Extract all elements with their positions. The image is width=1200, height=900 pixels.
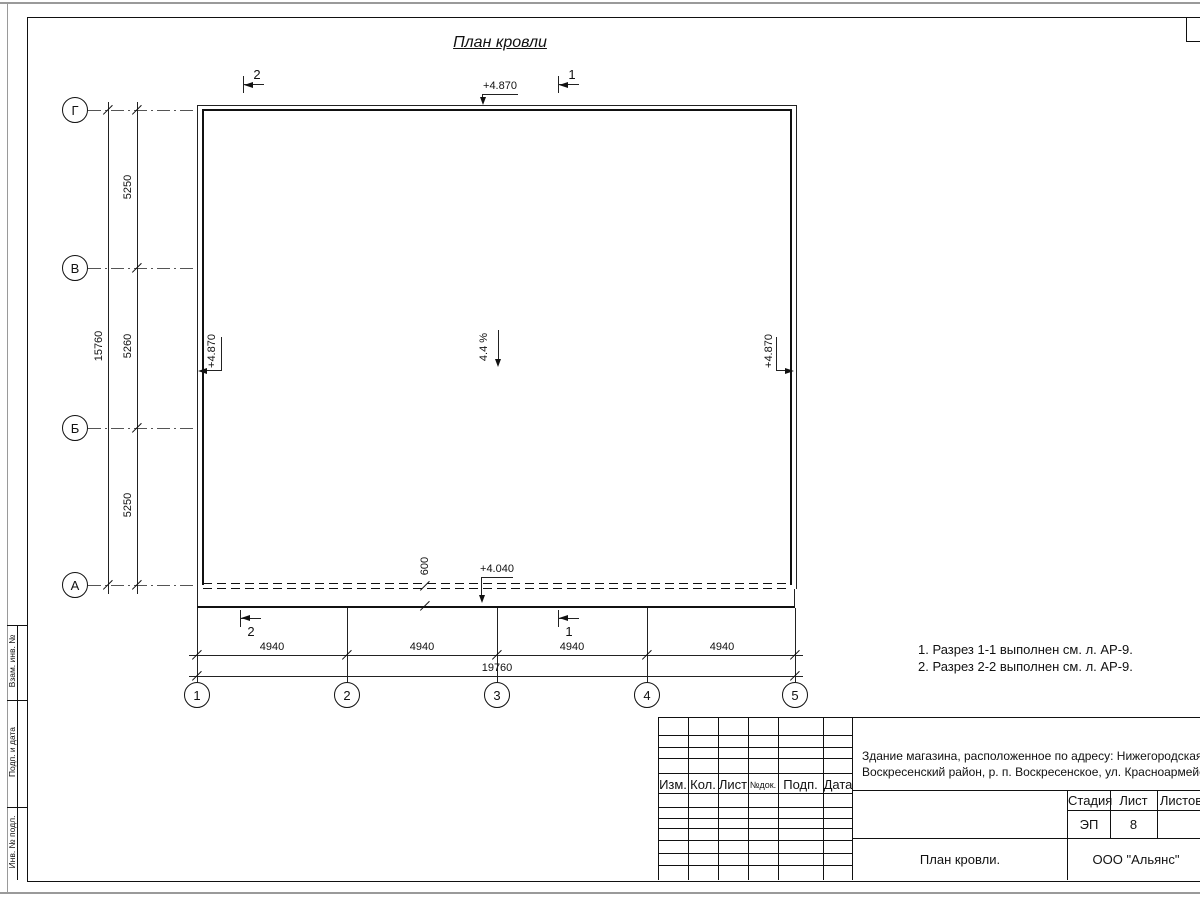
hidden-wall-dashed-line bbox=[203, 588, 791, 589]
titleblock-line bbox=[748, 717, 749, 880]
dim-value-rows: 5250 bbox=[122, 475, 134, 535]
sheet-number: 8 bbox=[1110, 817, 1157, 832]
slope-value: 4.4 % bbox=[478, 317, 490, 377]
elevation-leader bbox=[481, 577, 513, 578]
axis-bubble-3: 3 bbox=[484, 682, 510, 708]
titleblock-line bbox=[658, 717, 1200, 718]
titleblock-line bbox=[658, 758, 853, 759]
section-arrow-icon bbox=[559, 615, 568, 621]
note-line: 2. Разрез 2-2 выполнен см. л. АР-9. bbox=[918, 658, 1133, 675]
titleblock-line bbox=[658, 840, 853, 841]
dim-value-cols-total: 19760 bbox=[467, 662, 527, 674]
section-arrow-icon bbox=[241, 615, 250, 621]
titleblock-line bbox=[688, 717, 689, 880]
stage-value: ЭП bbox=[1068, 817, 1110, 832]
axis-bubble-2: 2 bbox=[334, 682, 360, 708]
wall-right-inner bbox=[790, 109, 792, 585]
elevation-leader bbox=[205, 370, 221, 371]
section-number: 2 bbox=[247, 67, 267, 82]
elevation-arrow-icon bbox=[480, 97, 486, 105]
axis-bubble-4: 4 bbox=[634, 682, 660, 708]
elevation-leader bbox=[482, 94, 518, 95]
titleblock-line bbox=[658, 717, 659, 880]
dim-line-cols-total bbox=[189, 676, 803, 677]
elevation-arrow-icon bbox=[785, 368, 794, 374]
axis-bubble-v: В bbox=[62, 255, 88, 281]
elevation-arrow-icon bbox=[479, 595, 485, 603]
titleblock-line bbox=[658, 818, 853, 819]
dim-value-cols: 4940 bbox=[392, 641, 452, 653]
titleblock-line bbox=[658, 793, 853, 794]
section-number: 1 bbox=[559, 624, 579, 639]
document-title: План кровли. bbox=[853, 852, 1067, 867]
margin-cell-divider bbox=[17, 625, 18, 880]
object-line: Здание магазина, расположенное по адресу… bbox=[862, 748, 1200, 764]
column-line-1 bbox=[197, 608, 198, 682]
titleblock-line bbox=[718, 717, 719, 880]
titleblock-col-data: Дата bbox=[823, 777, 853, 792]
titleblock-col-list: Лист bbox=[718, 777, 748, 792]
axis-line-g bbox=[88, 110, 197, 111]
titleblock-line bbox=[852, 838, 1200, 839]
elevation-arrow-icon bbox=[198, 368, 207, 374]
titleblock-line bbox=[658, 773, 853, 774]
drawing-title: План кровли bbox=[400, 34, 600, 52]
elevation-value: +4.870 bbox=[206, 321, 218, 381]
dim-value-rows-total: 15760 bbox=[93, 316, 105, 376]
wall-top-inner bbox=[202, 109, 792, 111]
dim-value-cols: 4940 bbox=[692, 641, 752, 653]
canopy-edge bbox=[197, 606, 795, 608]
elevation-value: +4.870 bbox=[763, 321, 775, 381]
axis-line-v bbox=[88, 268, 197, 269]
wall-left-inner bbox=[202, 109, 204, 585]
canopy-side-right bbox=[794, 589, 795, 606]
titleblock-line bbox=[778, 717, 779, 880]
titleblock-line bbox=[852, 790, 1200, 791]
titleblock-line bbox=[658, 807, 853, 808]
drawing-sheet: Взам. инв. № Подп. и дата Инв. № подл. П… bbox=[0, 0, 1200, 900]
company-name: ООО "Альянс" bbox=[1067, 852, 1200, 867]
titleblock-col-podp: Подп. bbox=[778, 777, 823, 792]
slope-arrow-line bbox=[498, 330, 499, 360]
hidden-wall-dashed-line bbox=[203, 583, 791, 584]
section-number: 2 bbox=[241, 624, 261, 639]
column-line-5 bbox=[795, 608, 796, 682]
sheets-label: Листов bbox=[1157, 793, 1200, 808]
section-arrow-icon bbox=[559, 82, 568, 88]
margin-stamp-label: Взам. инв. № bbox=[7, 616, 17, 706]
canopy-side-left bbox=[197, 589, 198, 606]
axis-bubble-1: 1 bbox=[184, 682, 210, 708]
wall-left-outer bbox=[197, 105, 198, 589]
elevation-leader bbox=[481, 577, 482, 595]
axis-bubble-a: А bbox=[62, 572, 88, 598]
titleblock-line bbox=[658, 865, 853, 866]
elevation-value: +4.870 bbox=[470, 80, 530, 92]
dim-value-rows: 5250 bbox=[122, 157, 134, 217]
dim-value-cols: 4940 bbox=[242, 641, 302, 653]
sheet-label: Лист bbox=[1110, 793, 1157, 808]
elevation-leader bbox=[221, 337, 222, 371]
titleblock-col-izm: Изм. bbox=[658, 777, 688, 792]
axis-line-b bbox=[88, 428, 197, 429]
note-line: 1. Разрез 1-1 выполнен см. л. АР-9. bbox=[918, 641, 1133, 658]
object-line: Воскресенский район, р. п. Воскресенское… bbox=[862, 764, 1200, 780]
axis-bubble-b: Б bbox=[62, 415, 88, 441]
titleblock-line bbox=[658, 735, 853, 736]
titleblock-col-ndok: №док. bbox=[748, 780, 778, 790]
dim-line-rows-total bbox=[108, 102, 109, 594]
dim-line-rows bbox=[137, 102, 138, 594]
section-number: 1 bbox=[562, 67, 582, 82]
elevation-leader bbox=[776, 337, 777, 371]
notes: 1. Разрез 1-1 выполнен см. л. АР-9. 2. Р… bbox=[918, 641, 1133, 675]
elevation-value: +4.040 bbox=[467, 563, 527, 575]
slope-arrow-icon bbox=[495, 359, 501, 367]
section-arrow-icon bbox=[244, 82, 253, 88]
titleblock-line bbox=[658, 747, 853, 748]
titleblock-line bbox=[658, 853, 853, 854]
margin-stamp-label: Подп. и дата bbox=[7, 707, 17, 797]
titleblock-col-kol: Кол. bbox=[688, 777, 718, 792]
margin-stamp-label: Инв. № подл. bbox=[7, 797, 17, 887]
sheet-edge-top bbox=[0, 2, 1200, 4]
sheet-edge-bottom bbox=[0, 892, 1200, 894]
wall-right-outer bbox=[796, 105, 797, 589]
corner-stamp-box bbox=[1186, 17, 1200, 42]
axis-line-a bbox=[88, 585, 197, 586]
axis-bubble-5: 5 bbox=[782, 682, 808, 708]
dim-value-cols: 4940 bbox=[542, 641, 602, 653]
dim-value-rows: 5260 bbox=[122, 316, 134, 376]
titleblock-line bbox=[823, 717, 824, 880]
titleblock-line bbox=[658, 828, 853, 829]
column-line-2 bbox=[347, 608, 348, 682]
stage-label: Стадия bbox=[1068, 793, 1110, 808]
titleblock-line bbox=[1067, 810, 1200, 811]
column-line-4 bbox=[647, 608, 648, 682]
wall-top-outer bbox=[197, 105, 797, 106]
canopy-depth-value: 600 bbox=[419, 536, 431, 596]
axis-bubble-g: Г bbox=[62, 97, 88, 123]
object-description: Здание магазина, расположенное по адресу… bbox=[862, 748, 1200, 780]
